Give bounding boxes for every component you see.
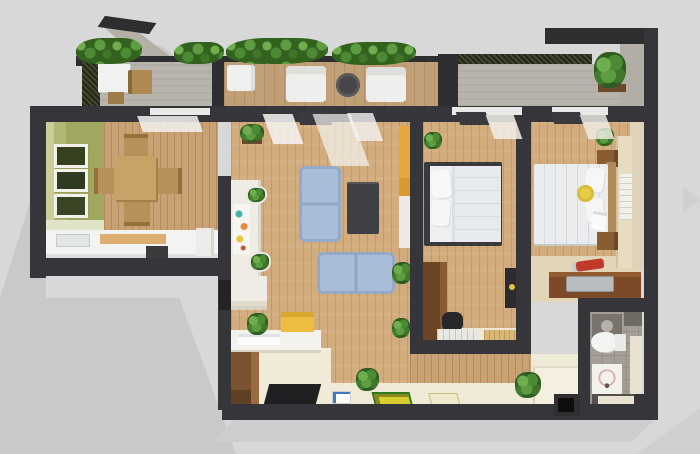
door-notch-inner <box>558 398 574 412</box>
bathroom-top-wall <box>578 298 658 312</box>
dining-chair-left <box>94 168 116 194</box>
window-sill-dining <box>150 108 210 115</box>
balcony-divider-1 <box>212 56 224 108</box>
bedroom1-pillow-2 <box>430 199 451 227</box>
toilet-tank <box>615 334 626 351</box>
kitchen-cutting-board <box>100 234 166 244</box>
kitchen-appliance <box>196 228 214 256</box>
balcony-desk <box>98 64 130 92</box>
light-wedge-dining <box>137 116 203 132</box>
balcony-divider-2 <box>438 54 458 112</box>
bedroom1-left-wall <box>410 106 423 352</box>
dining-bottom-wall <box>30 258 222 276</box>
right-balcony-plant <box>594 52 626 88</box>
balcony-deck-floor <box>224 62 440 108</box>
card-mat-blue <box>332 391 351 404</box>
kitchen-cooktop <box>146 246 168 258</box>
yellow-storage-box <box>281 312 314 332</box>
bedroom2-nightstand-bottom <box>597 232 618 250</box>
dining-table <box>114 156 156 200</box>
living-plant-top <box>240 124 264 142</box>
entry-wardrobe <box>231 352 259 404</box>
wall-planter-1 <box>246 186 267 204</box>
entry-desk-plant <box>247 313 268 335</box>
partition-posters <box>233 204 250 254</box>
hall-wood-band <box>410 352 531 384</box>
vanity-sink <box>566 276 614 292</box>
hedge-planter-4 <box>332 42 416 65</box>
bedroom1-duvet <box>452 166 501 242</box>
living-plant-sofa <box>392 262 412 284</box>
bedrooms-divider-wall <box>516 106 531 352</box>
kitchen-sink <box>56 234 90 247</box>
dining-chair-top <box>124 134 148 158</box>
balcony-white-seat <box>227 65 255 91</box>
hedge-planter-3 <box>226 38 328 64</box>
coffee-table <box>347 182 379 234</box>
toilet-bowl <box>591 332 617 352</box>
art-frame-accent <box>509 284 515 290</box>
picture-frame-1 <box>54 144 88 168</box>
picture-frame-2 <box>54 169 88 192</box>
sofa-two-seat-vertical <box>299 166 341 242</box>
door-lintel-bedroom1 <box>456 112 491 125</box>
door-lintel-bedroom2 <box>550 112 584 124</box>
cast-shadow-bottom <box>212 418 656 442</box>
hall-plant-right <box>515 372 541 398</box>
hedge-planter-1 <box>76 38 142 64</box>
sofa-loveseat-horizontal <box>317 252 395 294</box>
partition-console <box>231 276 267 306</box>
bathroom-dark-tile-top <box>624 312 642 326</box>
picture-frame-3 <box>54 194 88 218</box>
bedroom2-runner-rug <box>620 174 632 220</box>
outer-wall-bottom <box>222 404 658 420</box>
balcony-stool <box>108 92 124 104</box>
balcony-chair <box>128 70 152 94</box>
dining-chair-bottom <box>124 202 150 226</box>
lounge-chair-1 <box>286 66 326 102</box>
bedroom2-wall-band <box>630 122 644 268</box>
living-plant-bottom <box>392 318 410 338</box>
desk-papers <box>238 334 280 345</box>
bedroom1-plant <box>424 132 442 149</box>
floor-plan-render <box>0 0 700 454</box>
dining-chair-right <box>158 168 182 194</box>
hall-plant-center <box>356 368 379 391</box>
outer-wall-right <box>644 28 658 420</box>
bedroom1-pillow-1 <box>430 169 453 199</box>
lounge-chair-2 <box>366 67 406 102</box>
right-balcony-top-wall <box>545 28 658 44</box>
bedroom1-south-wall <box>410 340 531 354</box>
outer-wall-left <box>30 106 46 278</box>
bottom-corner-step <box>634 394 658 420</box>
wall-planter-2 <box>249 252 271 272</box>
round-side-table <box>336 73 360 97</box>
cast-shadow-bottom-left <box>0 298 236 454</box>
shower-mat <box>592 364 622 394</box>
bedroom2-round-yellow-pillow <box>577 185 594 202</box>
cast-shadow-right-arrow <box>683 186 700 212</box>
hedge-planter-2 <box>174 42 224 64</box>
